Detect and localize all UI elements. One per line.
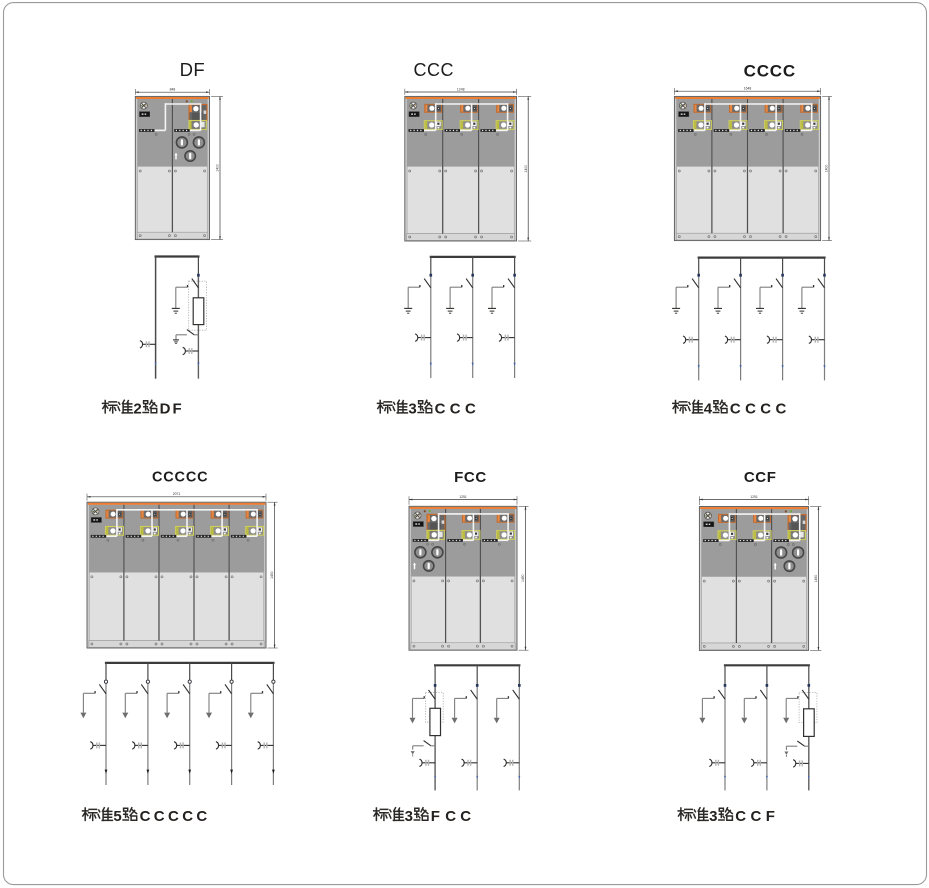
svg-text:3: 3	[408, 400, 416, 417]
svg-text:C: C	[460, 808, 471, 825]
svg-text:D: D	[160, 400, 171, 417]
svg-text:C: C	[776, 400, 787, 417]
svg-text:1248: 1248	[457, 87, 465, 91]
svg-text:5: 5	[113, 808, 121, 825]
svg-text:CCF: CCF	[744, 469, 777, 486]
svg-text:3: 3	[405, 808, 413, 825]
svg-text:F: F	[173, 400, 182, 417]
svg-text:C: C	[760, 400, 771, 417]
svg-text:CCCCC: CCCCC	[152, 470, 208, 486]
svg-text:1400: 1400	[216, 164, 220, 172]
svg-text:C: C	[154, 808, 165, 825]
svg-text:1648: 1648	[744, 87, 752, 91]
svg-text:848: 848	[170, 88, 176, 92]
svg-text:CCCC: CCCC	[744, 62, 796, 81]
svg-text:1251: 1251	[459, 495, 467, 499]
svg-text:1400: 1400	[524, 165, 528, 173]
svg-text:1450: 1450	[521, 574, 525, 582]
svg-text:1251: 1251	[750, 495, 758, 499]
svg-text:C: C	[745, 400, 756, 417]
svg-text:C: C	[435, 400, 446, 417]
svg-text:3: 3	[709, 808, 717, 825]
svg-text:CCC: CCC	[414, 60, 455, 80]
svg-text:1400: 1400	[825, 165, 829, 173]
svg-text:C: C	[465, 400, 476, 417]
svg-text:C: C	[445, 808, 456, 825]
svg-text:F: F	[431, 808, 440, 825]
svg-text:C: C	[735, 808, 746, 825]
svg-text:C: C	[751, 808, 762, 825]
svg-text:C: C	[140, 808, 151, 825]
svg-text:2: 2	[133, 400, 141, 417]
svg-text:F: F	[766, 808, 775, 825]
svg-text:4: 4	[704, 400, 713, 417]
svg-text:C: C	[450, 400, 461, 417]
svg-text:1450: 1450	[270, 571, 274, 579]
svg-text:2071: 2071	[173, 492, 181, 496]
svg-text:C: C	[730, 400, 741, 417]
svg-text:C: C	[196, 808, 207, 825]
svg-text:FCC: FCC	[454, 469, 487, 486]
svg-text:C: C	[168, 808, 179, 825]
svg-text:DF: DF	[180, 59, 206, 80]
svg-text:1450: 1450	[814, 575, 818, 583]
svg-text:C: C	[182, 808, 193, 825]
